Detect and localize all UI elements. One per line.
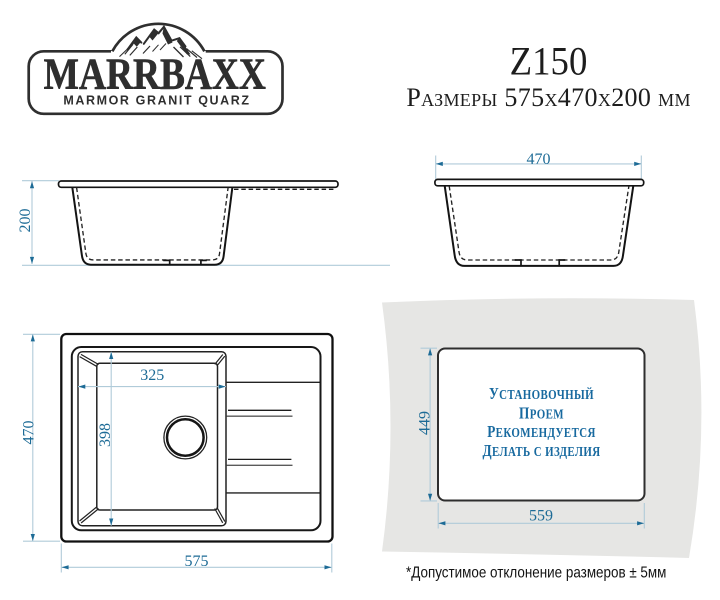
- svg-text:MARMOR GRANIT QUARZ: MARMOR GRANIT QUARZ: [63, 94, 250, 108]
- svg-text:398: 398: [97, 423, 114, 447]
- svg-text:575: 575: [185, 553, 209, 570]
- svg-text:РЕКОМЕНДУЕТСЯ: РЕКОМЕНДУЕТСЯ: [487, 423, 596, 442]
- svg-text:ДЕЛАТЬ С ИЗДЕЛИЯ: ДЕЛАТЬ С ИЗДЕЛИЯ: [482, 441, 600, 460]
- svg-text:Z150: Z150: [510, 40, 588, 84]
- svg-text:*Допустимое отклонение размеро: *Допустимое отклонение размеров ± 5мм: [406, 565, 666, 582]
- svg-text:MARRBAXX: MARRBAXX: [44, 50, 266, 98]
- svg-text:470: 470: [527, 151, 551, 168]
- svg-text:559: 559: [529, 508, 553, 525]
- svg-text:325: 325: [140, 367, 164, 384]
- svg-text:УСТАНОВОЧНЫЙ: УСТАНОВОЧНЫЙ: [489, 385, 594, 404]
- svg-text:ПРОЕМ: ПРОЕМ: [519, 404, 564, 423]
- svg-text:200: 200: [17, 209, 34, 233]
- svg-text:449: 449: [417, 411, 434, 435]
- svg-text:Размеры 575х470х200 мм: Размеры 575х470х200 мм: [406, 83, 690, 112]
- svg-text:470: 470: [20, 421, 37, 445]
